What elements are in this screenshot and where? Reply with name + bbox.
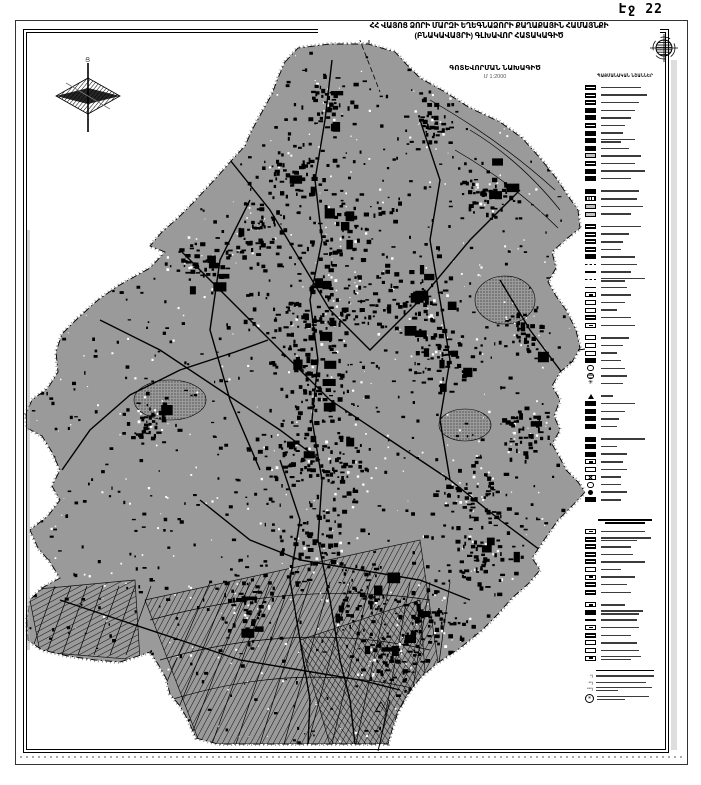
legend-item-label	[601, 656, 641, 660]
legend-item	[585, 292, 665, 297]
legend-symbol-bx-o-icon	[585, 308, 596, 313]
page-number: Էջ 22	[619, 2, 663, 17]
legend-item	[585, 656, 665, 661]
legend-item	[585, 161, 665, 166]
zoning-project-label: ԳՈՏԵՎՈՐՄԱՆ ՆԱԽԱԳԻԾ	[400, 64, 590, 72]
footnote-marker: **)	[585, 681, 593, 685]
legend-item-label	[601, 294, 631, 296]
legend-symbol-bx-f-icon	[585, 108, 596, 113]
legend-item	[585, 381, 665, 386]
legend-item-label	[601, 325, 635, 327]
legend-item-label	[601, 642, 637, 644]
legend-item	[585, 602, 665, 607]
legend-item-label	[601, 117, 631, 119]
legend-symbol-bx-h-icon	[585, 85, 596, 90]
legend-symbol-bx-h-icon	[585, 161, 596, 166]
legend-symbol-bx-b-icon	[585, 292, 596, 297]
legend-symbol-bx-b-icon	[585, 323, 596, 328]
legend-symbol-bx-f-icon	[585, 189, 596, 194]
map-title: ՀՀ ՎԱՅՈՑ ՁՈՐԻ ՄԱՐԶԻ ԵՂԵԳՆԱՁՈՐԻ ՔԱՂԱՔԱՅԻՆ…	[318, 21, 660, 40]
legend-item	[585, 625, 665, 630]
legend-item	[585, 176, 665, 181]
legend-item-label	[601, 469, 627, 471]
legend-item-label	[601, 170, 645, 172]
legend-item-label	[601, 226, 641, 228]
legend-symbol-bx-h-icon	[585, 633, 596, 638]
legend-item	[585, 582, 665, 587]
legend-gap	[585, 505, 665, 515]
legend-symbol-bx-o-icon	[585, 335, 596, 340]
footnote-row: ✳	[585, 694, 665, 703]
legend-symbol-bx-f-icon	[585, 452, 596, 457]
legend-item-label	[601, 302, 625, 304]
legend-item-label	[601, 569, 621, 571]
legend-item	[585, 204, 665, 209]
legend-symbol-cf-icon	[585, 490, 596, 495]
legend-item-label	[601, 271, 631, 273]
legend-item	[585, 452, 665, 457]
legend-symbol-bx-f-icon	[585, 416, 596, 421]
legend-item	[585, 529, 665, 534]
legend-symbol-bx-f-icon	[585, 401, 596, 406]
footnote-star-icon: ✳	[585, 694, 594, 703]
legend-item-label	[601, 491, 627, 493]
legend-symbol-bx-h-icon	[585, 224, 596, 229]
legend-symbol-st-icon	[585, 381, 596, 386]
map-title-line2: (ԲՆԱԿԱՎԱՅՐԻ) ԳԼԽԱՎՈՐ ՀԱՏԱԿԱԳԻԾ	[318, 31, 660, 41]
legend-item	[585, 497, 665, 502]
legend-item	[585, 270, 665, 275]
legend-item-label	[601, 132, 623, 134]
legend-item	[585, 633, 665, 638]
legend-item	[585, 475, 665, 480]
legend-item	[585, 189, 665, 194]
legend-item	[585, 343, 665, 348]
legend-item	[585, 146, 665, 151]
legend-item-label	[601, 198, 637, 200]
legend-item-label	[601, 446, 617, 448]
legend-item-label	[601, 360, 621, 362]
legend-symbol-bx-o-icon	[585, 640, 596, 645]
legend-item	[585, 262, 665, 267]
legend-item-label	[601, 537, 651, 541]
legend-item	[585, 232, 665, 237]
legend-item	[585, 108, 665, 113]
legend-symbol-bx-h-icon	[585, 123, 596, 128]
legend-symbol-ln-d-icon	[585, 264, 596, 265]
legend-symbol-bx-d-icon	[585, 204, 596, 209]
legend-symbol-bx-f-icon	[585, 131, 596, 136]
legend-item-label	[601, 94, 647, 96]
legend-symbol-bx-h-icon	[585, 93, 596, 98]
legend-symbol-bx-f-icon	[585, 444, 596, 449]
legend-symbol-bx-f-icon	[585, 437, 596, 442]
legend-item	[585, 351, 665, 356]
legend-symbol-bx-o-icon	[585, 567, 596, 572]
legend-symbol-bx-b-icon	[585, 656, 596, 661]
legend-item	[585, 277, 665, 282]
legend-item-label	[601, 592, 631, 594]
legend-item	[585, 308, 665, 313]
legend-item-label	[601, 148, 629, 150]
legend-item	[585, 115, 665, 120]
legend-symbol-bx-h-icon	[585, 247, 596, 252]
legend-item	[585, 224, 665, 229]
legend-item	[585, 590, 665, 595]
legend-item	[585, 323, 665, 328]
legend-item-label	[601, 87, 641, 89]
legend-item	[585, 254, 665, 259]
legend-symbol-ln-n-icon	[585, 287, 596, 288]
legend-item-label	[601, 411, 625, 413]
legend-item	[585, 315, 665, 320]
legend-item-label	[601, 627, 639, 629]
legend-item	[585, 467, 665, 472]
legend-item	[585, 416, 665, 421]
legend-item	[585, 358, 665, 363]
legend-item-label	[601, 155, 641, 157]
legend-item-label	[601, 604, 625, 606]
legend-item-label	[601, 264, 637, 266]
legend-section-header	[585, 519, 665, 524]
legend-item	[585, 409, 665, 414]
footnote-marker: *)	[585, 674, 593, 678]
legend-symbol-bx-h-icon	[585, 544, 596, 549]
legend-item	[585, 552, 665, 557]
legend-symbol-bx-b-icon	[585, 529, 596, 534]
legend-symbol-bx-f-icon	[585, 409, 596, 414]
legend-symbol-bx-f-icon	[585, 358, 596, 363]
right-margin-shading	[671, 60, 677, 750]
legend-symbol-cg-icon	[585, 373, 596, 378]
legend-item	[585, 424, 665, 429]
legend-symbol-bx-x-icon	[585, 475, 596, 480]
legend-symbol-bx-f-icon	[585, 424, 596, 429]
legend-symbol-ci-icon	[585, 482, 596, 487]
legend-item-label	[601, 337, 629, 339]
legend-item	[585, 335, 665, 340]
legend-symbol-bx-o2-icon	[585, 467, 596, 472]
legend-item	[585, 212, 665, 217]
legend-item-label	[601, 453, 627, 455]
legend-item-label	[601, 110, 635, 112]
legend-item	[585, 153, 665, 158]
legend-item	[585, 100, 665, 105]
map-title-line1: ՀՀ ՎԱՅՈՑ ՁՈՐԻ ՄԱՐԶԻ ԵՂԵԳՆԱՁՈՐԻ ՔԱՂԱՔԱՅԻՆ…	[318, 21, 660, 31]
legend-item	[585, 482, 665, 487]
legend-symbol-bx-f-icon	[585, 610, 596, 615]
legend-item-label	[601, 650, 639, 652]
legend-symbol-bx-h-icon	[585, 590, 596, 595]
legend-symbol-bx-f-icon	[585, 176, 596, 181]
legend-symbol-bx-h-icon	[585, 315, 596, 320]
legend-symbol-bx-b-icon	[585, 459, 596, 464]
legend-symbol-bx-h-icon	[585, 559, 596, 564]
left-margin-shading	[27, 230, 30, 650]
stamp-icon	[648, 32, 682, 66]
legend-symbol-bx-d-icon	[585, 153, 596, 158]
legend-symbol-bx-b-icon	[585, 625, 596, 630]
legend-item-label	[601, 317, 631, 319]
footnote-row: *)	[585, 674, 665, 678]
compass-rose-icon: Ց	[48, 50, 128, 140]
footnote-header	[585, 670, 665, 672]
legend-symbol-bx-f-icon	[585, 497, 596, 502]
legend-item	[585, 285, 665, 290]
footnote-text	[596, 675, 654, 677]
legend-item	[585, 123, 665, 128]
legend-item-label	[601, 461, 623, 463]
legend-item-label	[601, 190, 639, 192]
legend-item	[585, 131, 665, 136]
legend-symbol-bx-f-icon	[585, 254, 596, 259]
legend-item	[585, 559, 665, 564]
legend-item	[585, 401, 665, 406]
legend-item	[585, 567, 665, 572]
legend-symbol-ln-d-icon	[585, 279, 596, 280]
legend-symbol-bx-h-icon	[585, 232, 596, 237]
legend-symbol-bx-h-icon	[585, 537, 596, 542]
footnote-text	[596, 687, 652, 691]
legend-item	[585, 437, 665, 442]
legend-symbol-bx-h-icon	[585, 552, 596, 557]
legend-item-label	[601, 178, 631, 180]
legend-item-label	[601, 554, 633, 556]
legend-symbol-bx-f-icon	[585, 138, 596, 143]
legend-item	[585, 394, 665, 399]
legend-item-label	[601, 561, 645, 563]
legend-item-label	[601, 499, 621, 501]
legend-symbol-ci-icon	[585, 366, 596, 371]
legend-item	[585, 239, 665, 244]
legend-item	[585, 490, 665, 495]
legend-item-label	[601, 206, 643, 208]
legend-item-label	[601, 584, 627, 586]
legend-symbol-bx-o-icon	[585, 343, 596, 348]
legend-item	[585, 247, 665, 252]
legend-item-label	[601, 368, 625, 370]
legend-title: ՊԱՅՄԱՆԱԿԱՆ ՆՇԱՆՆԵՐ	[585, 73, 665, 78]
legend-item	[585, 575, 665, 580]
legend-item	[585, 93, 665, 98]
legend-item-label	[601, 352, 617, 354]
legend-item-label	[601, 345, 623, 347]
legend-item-label	[601, 426, 617, 428]
legend-symbol-bx-f-icon	[585, 115, 596, 120]
legend-item-label	[601, 278, 645, 282]
legend-symbol-ln-t-icon	[585, 619, 596, 621]
footnote-marker: ***)	[585, 687, 593, 691]
legend-item	[585, 537, 665, 542]
legend-item-label	[601, 375, 627, 377]
legend-item	[585, 366, 665, 371]
legend-item	[585, 610, 665, 615]
footnote-row: **)	[585, 681, 665, 685]
legend-symbol-bx-h-icon	[585, 100, 596, 105]
legend-item-label	[601, 635, 631, 637]
legend-footnotes: *)**)***)✳	[585, 670, 665, 703]
legend-symbol-bx-b-icon	[585, 602, 596, 607]
legend-symbol-bx-h-icon	[585, 582, 596, 587]
legend-item-label	[601, 233, 629, 235]
legend-item-label	[601, 256, 635, 258]
legend-symbol-bx-o-icon	[585, 648, 596, 653]
legend-item-label	[601, 403, 635, 405]
legend-item	[585, 459, 665, 464]
legend-item	[585, 85, 665, 90]
legend-item	[585, 640, 665, 645]
legend-symbol-bx-f-icon	[585, 169, 596, 174]
legend-item	[585, 544, 665, 549]
legend-symbol-tr-icon	[585, 394, 596, 399]
legend-item-label	[601, 610, 643, 614]
legend-item	[585, 138, 665, 143]
legend-item	[585, 444, 665, 449]
legend-symbol-bx-h-icon	[585, 239, 596, 244]
legend-item	[585, 618, 665, 623]
legend-symbol-bx-f-icon	[585, 146, 596, 151]
footnote-text	[596, 682, 646, 684]
legend-item-label	[601, 383, 623, 385]
legend-item-label	[601, 476, 621, 478]
footnote-text	[597, 696, 649, 700]
legend-items	[585, 85, 665, 661]
legend-item-label	[601, 309, 617, 311]
scale-label: Մ 1:2000	[400, 74, 590, 80]
legend-symbol-bx-o-icon	[585, 300, 596, 305]
legend-item-label	[601, 619, 637, 621]
legend-item-label	[601, 395, 613, 397]
legend-symbol-bx-d-icon	[585, 212, 596, 217]
compass-north-letter: Ց	[85, 57, 90, 64]
legend-item-label	[601, 163, 635, 165]
legend-item-label	[601, 531, 645, 533]
legend-item-label	[601, 139, 635, 143]
legend-item-label	[601, 249, 621, 251]
footnote-row: ***)	[585, 687, 665, 691]
map-subtitle: ԳՈՏԵՎՈՐՄԱՆ ՆԱԽԱԳԻԾ Մ 1:2000	[400, 64, 590, 80]
legend-item-label	[601, 418, 619, 420]
legend-item-label	[601, 125, 625, 127]
legend-item-label	[601, 576, 635, 578]
legend-symbol-bx-w-icon	[585, 196, 596, 201]
legend-item	[585, 196, 665, 201]
legend-item	[585, 648, 665, 653]
legend-item-label	[601, 102, 639, 104]
legend-symbol-bx-b-icon	[585, 575, 596, 580]
legend-item-label	[601, 241, 623, 243]
legend-item	[585, 373, 665, 378]
legend-item-label	[601, 546, 631, 548]
legend-item-label	[601, 438, 645, 440]
legend-symbol-ln-t-icon	[585, 271, 596, 273]
legend-item-label	[601, 213, 631, 215]
legend-panel: ՊԱՅՄԱՆԱԿԱՆ ՆՇԱՆՆԵՐ *)**)***)✳	[585, 73, 665, 705]
legend-item	[585, 169, 665, 174]
legend-item	[585, 300, 665, 305]
legend-item-label	[601, 484, 621, 486]
legend-symbol-bx-o-icon	[585, 351, 596, 356]
legend-item-label	[601, 287, 627, 289]
